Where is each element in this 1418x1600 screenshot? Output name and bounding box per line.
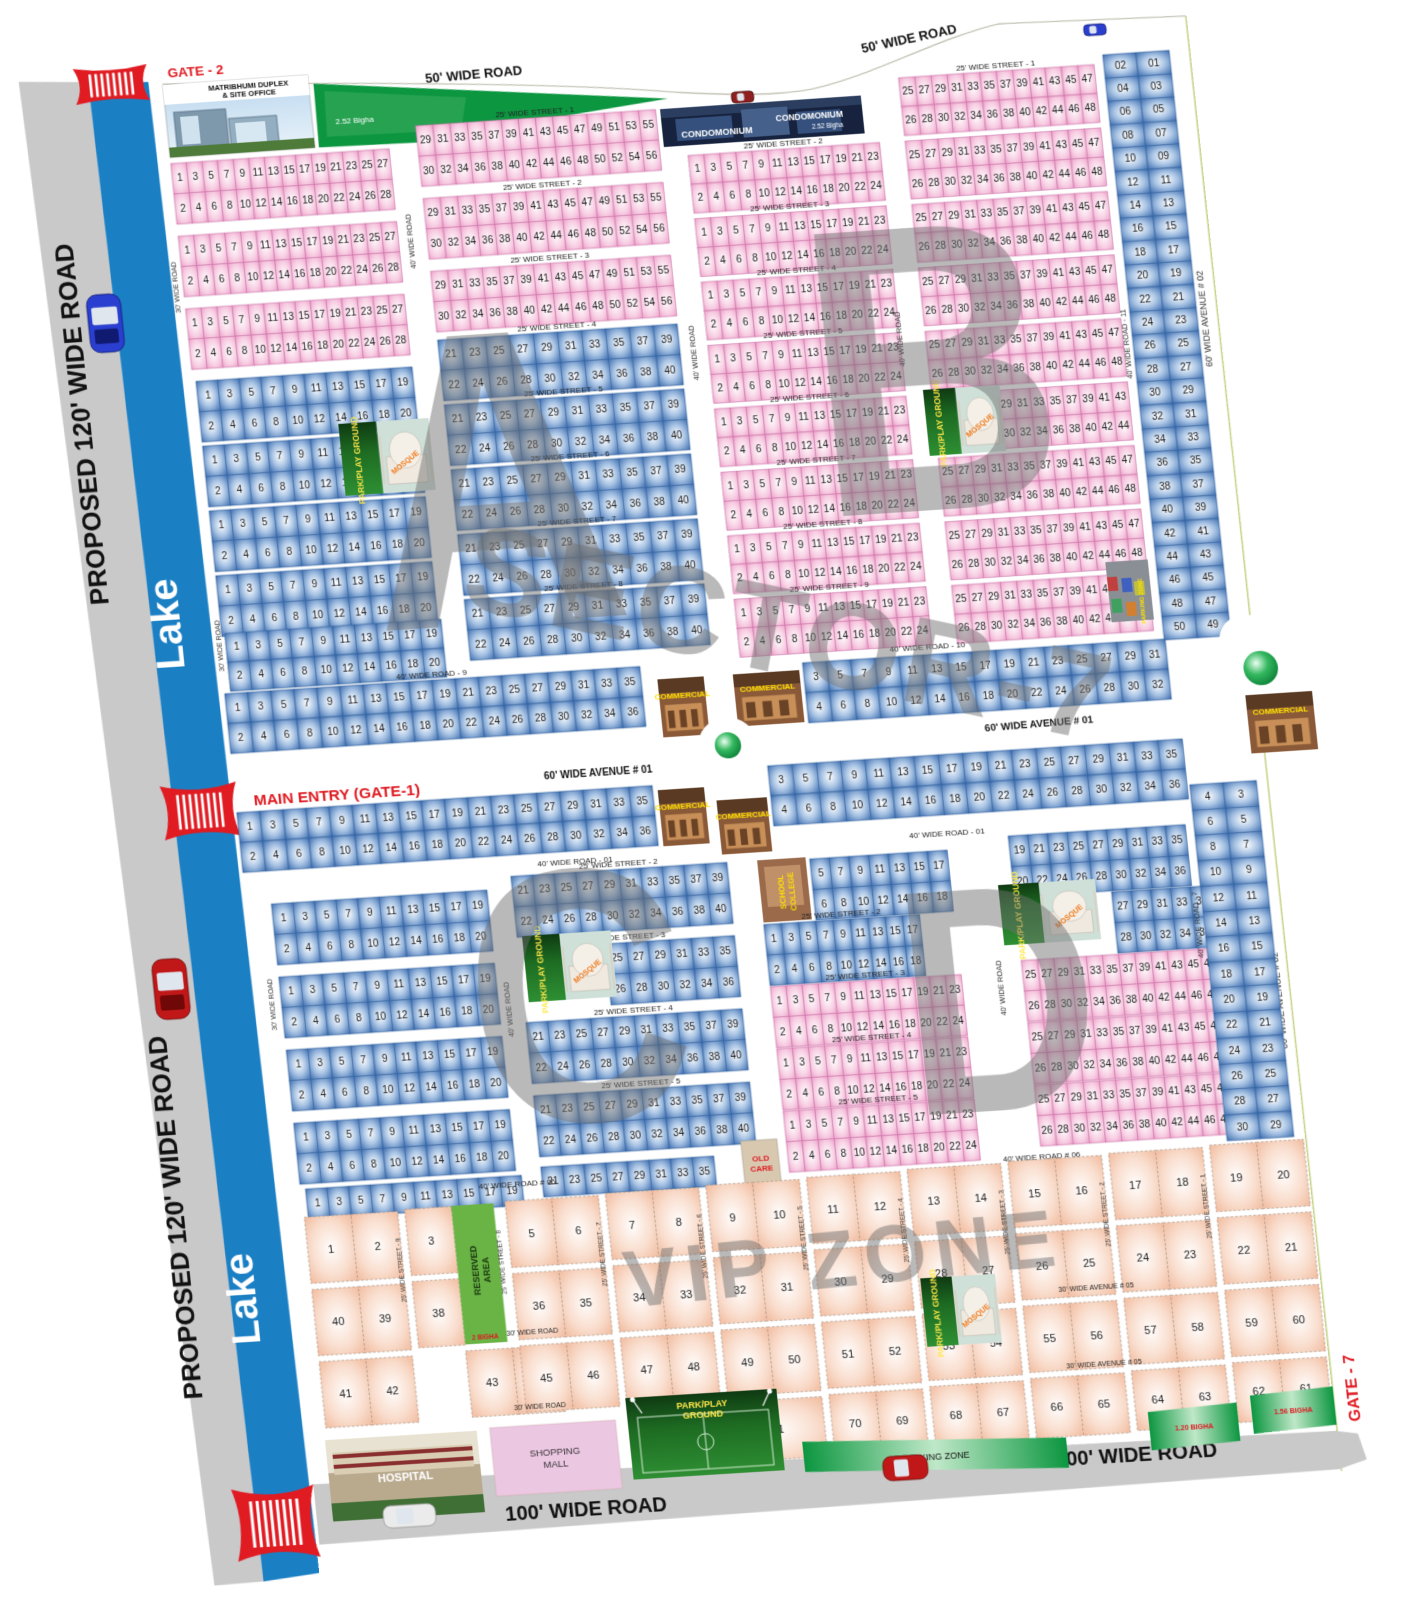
svg-text:39: 39: [667, 399, 680, 411]
svg-text:6: 6: [575, 1225, 582, 1237]
svg-text:37: 37: [488, 130, 501, 142]
svg-text:11: 11: [330, 578, 342, 590]
svg-text:16: 16: [1075, 1185, 1089, 1198]
svg-text:13: 13: [407, 905, 420, 917]
svg-text:12: 12: [411, 1156, 424, 1168]
svg-text:15: 15: [463, 1188, 476, 1200]
svg-text:14: 14: [425, 1082, 438, 1094]
svg-text:44: 44: [1092, 486, 1105, 498]
svg-text:46: 46: [1108, 485, 1121, 497]
svg-text:40: 40: [730, 1050, 743, 1062]
svg-text:30: 30: [558, 711, 571, 723]
svg-text:56: 56: [653, 223, 666, 235]
svg-text:27: 27: [918, 85, 931, 97]
svg-text:17: 17: [1129, 1180, 1143, 1193]
svg-text:42: 42: [1049, 233, 1062, 245]
svg-text:44: 44: [1187, 1116, 1200, 1128]
svg-text:35: 35: [1119, 1089, 1132, 1101]
svg-text:25: 25: [902, 86, 915, 98]
svg-text:19: 19: [1230, 1172, 1244, 1185]
svg-text:26: 26: [1144, 341, 1157, 353]
svg-text:54: 54: [643, 297, 656, 309]
svg-text:47: 47: [1128, 519, 1141, 531]
svg-text:12: 12: [863, 1084, 876, 1096]
svg-text:19: 19: [1170, 268, 1183, 280]
svg-text:17: 17: [314, 310, 327, 322]
svg-text:13: 13: [882, 1114, 895, 1126]
svg-text:10: 10: [320, 665, 333, 677]
svg-text:42: 42: [1042, 170, 1055, 182]
svg-text:14: 14: [348, 542, 361, 554]
svg-text:48: 48: [1104, 293, 1117, 305]
svg-text:22: 22: [998, 790, 1011, 802]
svg-text:41: 41: [1197, 526, 1210, 538]
svg-text:31: 31: [444, 207, 457, 219]
svg-text:15: 15: [291, 238, 304, 250]
svg-text:11: 11: [1246, 891, 1258, 903]
svg-text:Lake: Lake: [141, 577, 194, 671]
svg-text:13: 13: [345, 511, 358, 523]
svg-text:15: 15: [451, 1123, 464, 1135]
svg-text:49: 49: [606, 269, 619, 281]
svg-text:07: 07: [1155, 128, 1168, 140]
svg-text:20: 20: [332, 339, 345, 351]
svg-text:28: 28: [1120, 932, 1133, 944]
svg-text:22: 22: [1226, 1020, 1239, 1032]
svg-text:20: 20: [1223, 994, 1236, 1006]
svg-text:48: 48: [1171, 598, 1184, 610]
svg-text:47: 47: [581, 197, 594, 209]
svg-text:16: 16: [408, 841, 421, 853]
svg-text:40: 40: [677, 495, 690, 507]
svg-text:C: C: [446, 787, 710, 1204]
svg-text:10: 10: [785, 442, 798, 454]
svg-text:49: 49: [591, 123, 604, 135]
svg-text:55: 55: [642, 120, 655, 132]
svg-text:26: 26: [511, 714, 524, 726]
svg-text:39: 39: [1152, 1087, 1165, 1099]
svg-text:12: 12: [869, 1146, 882, 1158]
svg-text:34: 34: [970, 111, 983, 123]
svg-text:20: 20: [317, 194, 330, 206]
svg-text:38: 38: [1132, 1057, 1145, 1069]
svg-text:39: 39: [712, 873, 725, 885]
svg-text:31: 31: [1148, 649, 1161, 661]
svg-text:12: 12: [1212, 893, 1225, 905]
svg-text:05: 05: [1153, 104, 1166, 116]
svg-text:19: 19: [314, 163, 327, 175]
svg-text:35: 35: [1165, 749, 1178, 761]
svg-text:50: 50: [1174, 622, 1187, 634]
svg-text:10: 10: [771, 315, 784, 327]
svg-text:38: 38: [1003, 109, 1016, 121]
svg-text:18: 18: [431, 839, 444, 851]
svg-text:12: 12: [327, 543, 340, 555]
svg-text:42: 42: [1082, 551, 1095, 563]
svg-text:35: 35: [719, 946, 732, 958]
svg-text:28: 28: [1146, 364, 1159, 376]
svg-text:12: 12: [876, 798, 889, 810]
svg-text:33: 33: [698, 947, 711, 959]
svg-text:36: 36: [623, 433, 636, 445]
svg-text:47: 47: [574, 125, 587, 137]
svg-text:60: 60: [1292, 1314, 1306, 1327]
svg-text:10: 10: [239, 199, 252, 211]
svg-text:15: 15: [298, 311, 311, 323]
svg-text:35: 35: [478, 204, 491, 216]
svg-text:5: 5: [528, 1228, 535, 1240]
svg-text:49: 49: [598, 196, 611, 208]
svg-text:10: 10: [758, 189, 771, 201]
svg-text:46: 46: [1190, 990, 1203, 1002]
svg-text:13: 13: [897, 767, 910, 779]
svg-text:27: 27: [377, 159, 390, 171]
svg-text:33: 33: [1176, 897, 1189, 909]
svg-text:1: 1: [327, 1244, 334, 1256]
svg-text:35: 35: [983, 81, 996, 93]
svg-text:31: 31: [1117, 752, 1130, 764]
svg-text:36: 36: [532, 1300, 546, 1313]
svg-text:17: 17: [306, 237, 319, 249]
svg-text:14: 14: [278, 270, 291, 282]
svg-text:22: 22: [333, 193, 346, 205]
svg-text:25: 25: [1177, 338, 1190, 350]
svg-text:11: 11: [324, 513, 336, 525]
svg-text:14: 14: [410, 935, 423, 947]
svg-text:15: 15: [283, 165, 296, 177]
svg-text:48: 48: [1098, 230, 1111, 242]
svg-text:02: 02: [1114, 60, 1127, 72]
svg-text:10: 10: [292, 415, 305, 427]
svg-text:44: 44: [1098, 550, 1111, 562]
svg-text:28: 28: [380, 189, 393, 201]
svg-text:31: 31: [1131, 838, 1144, 850]
svg-text:18: 18: [302, 195, 315, 207]
svg-text:28: 28: [1095, 871, 1108, 883]
svg-text:37: 37: [495, 203, 508, 215]
svg-text:39: 39: [1194, 502, 1207, 514]
svg-text:40: 40: [1161, 505, 1174, 517]
svg-text:40: 40: [1085, 423, 1098, 435]
svg-text:01: 01: [1148, 58, 1161, 70]
svg-text:55: 55: [1043, 1333, 1057, 1346]
svg-text:14: 14: [335, 412, 348, 424]
svg-text:12: 12: [262, 271, 275, 283]
svg-text:42: 42: [1035, 106, 1048, 118]
svg-text:31: 31: [1156, 899, 1169, 911]
svg-text:34: 34: [1154, 867, 1167, 879]
svg-text:40: 40: [664, 365, 677, 377]
svg-text:42: 42: [1062, 360, 1075, 372]
svg-text:08: 08: [1122, 130, 1135, 142]
svg-text:46: 46: [1115, 549, 1128, 561]
svg-text:11: 11: [401, 1052, 413, 1064]
svg-text:10: 10: [327, 727, 340, 739]
svg-text:55: 55: [650, 193, 663, 205]
svg-text:36: 36: [986, 110, 999, 122]
svg-text:18: 18: [317, 340, 330, 352]
svg-text:21: 21: [337, 235, 350, 247]
svg-text:10: 10: [1210, 867, 1223, 879]
svg-text:31: 31: [1185, 409, 1198, 421]
svg-text:52: 52: [611, 153, 624, 165]
svg-text:42: 42: [525, 158, 538, 170]
svg-text:15: 15: [1251, 941, 1264, 953]
svg-text:16: 16: [888, 1020, 901, 1032]
svg-text:30: 30: [1140, 931, 1153, 943]
svg-text:40: 40: [715, 904, 728, 916]
svg-text:43: 43: [547, 200, 560, 212]
svg-text:27: 27: [1267, 1094, 1280, 1106]
svg-text:47: 47: [1081, 74, 1094, 86]
svg-text:55: 55: [657, 265, 670, 277]
svg-text:11: 11: [854, 991, 866, 1003]
svg-text:36: 36: [722, 977, 735, 989]
svg-text:10: 10: [367, 938, 380, 950]
svg-text:35: 35: [619, 403, 632, 415]
svg-text:28: 28: [921, 114, 934, 126]
svg-text:28: 28: [1071, 786, 1084, 798]
svg-text:22: 22: [1139, 294, 1152, 306]
svg-text:15: 15: [405, 811, 418, 823]
svg-text:12: 12: [362, 844, 375, 856]
svg-text:26: 26: [905, 115, 918, 127]
svg-text:13: 13: [282, 312, 295, 324]
svg-text:45: 45: [1200, 1084, 1213, 1096]
svg-text:46: 46: [560, 156, 573, 168]
svg-text:38: 38: [647, 432, 660, 444]
svg-text:47: 47: [1088, 138, 1101, 150]
svg-text:54: 54: [636, 224, 649, 236]
svg-text:56: 56: [645, 150, 658, 162]
svg-text:66: 66: [1050, 1402, 1064, 1415]
svg-text:35: 35: [626, 468, 639, 480]
svg-text:67: 67: [996, 1407, 1010, 1420]
svg-text:41: 41: [1086, 585, 1099, 597]
svg-text:59: 59: [1245, 1317, 1259, 1330]
svg-text:14: 14: [1215, 918, 1228, 930]
svg-text:06: 06: [1119, 107, 1132, 119]
svg-text:58: 58: [1191, 1322, 1205, 1335]
svg-text:70: 70: [849, 1418, 863, 1431]
svg-text:19: 19: [970, 762, 983, 774]
svg-text:11: 11: [791, 349, 803, 361]
svg-text:25: 25: [369, 233, 382, 245]
svg-text:42: 42: [1089, 614, 1102, 626]
svg-text:11: 11: [359, 814, 371, 826]
svg-text:46: 46: [587, 1369, 601, 1382]
svg-text:9: 9: [729, 1212, 736, 1224]
svg-text:35: 35: [613, 338, 626, 350]
svg-text:36: 36: [1116, 1058, 1129, 1070]
svg-text:18: 18: [949, 794, 962, 806]
svg-text:10: 10: [791, 506, 804, 518]
svg-text:44: 44: [1174, 991, 1187, 1003]
svg-text:43: 43: [1089, 457, 1102, 469]
svg-text:18: 18: [419, 720, 432, 732]
svg-text:43: 43: [1049, 76, 1062, 88]
svg-text:54: 54: [628, 151, 641, 163]
svg-text:44: 44: [1166, 551, 1179, 563]
svg-text:10: 10: [840, 960, 853, 972]
svg-text:16: 16: [454, 1153, 467, 1165]
svg-text:37: 37: [637, 336, 650, 348]
svg-text:20: 20: [1277, 1169, 1291, 1182]
svg-text:12: 12: [255, 198, 268, 210]
svg-text:42: 42: [1158, 992, 1171, 1004]
svg-text:24: 24: [1022, 789, 1035, 801]
svg-text:45: 45: [557, 126, 570, 138]
svg-text:11: 11: [267, 313, 279, 325]
svg-text:38: 38: [640, 367, 653, 379]
svg-text:42: 42: [1101, 422, 1114, 434]
svg-text:14: 14: [418, 1008, 431, 1020]
svg-text:20: 20: [442, 719, 455, 731]
svg-text:16: 16: [901, 1144, 914, 1156]
svg-text:10: 10: [1124, 153, 1137, 165]
svg-text:17: 17: [428, 809, 441, 821]
svg-text:13: 13: [352, 576, 365, 588]
svg-text:21: 21: [330, 162, 343, 174]
svg-text:14: 14: [885, 1145, 898, 1157]
svg-text:09: 09: [1157, 151, 1170, 163]
svg-text:33: 33: [454, 133, 467, 145]
svg-text:32: 32: [1151, 411, 1164, 423]
svg-text:50: 50: [594, 154, 607, 166]
svg-text:17: 17: [1167, 245, 1180, 257]
svg-text:28: 28: [1234, 1096, 1247, 1108]
svg-text:14: 14: [875, 958, 888, 970]
svg-text:36: 36: [1109, 995, 1122, 1007]
svg-text:13: 13: [332, 382, 345, 394]
svg-text:22: 22: [465, 717, 478, 729]
svg-text:10: 10: [765, 252, 778, 264]
svg-text:43: 43: [1171, 960, 1184, 972]
svg-text:43: 43: [1177, 1023, 1190, 1035]
svg-text:11: 11: [347, 695, 359, 707]
svg-text:34: 34: [1144, 781, 1157, 793]
svg-text:41: 41: [1059, 331, 1072, 343]
svg-text:20: 20: [325, 266, 338, 278]
svg-text:37: 37: [643, 401, 656, 413]
svg-text:24: 24: [1136, 1252, 1150, 1265]
svg-text:43: 43: [486, 1377, 500, 1390]
svg-text:45: 45: [1065, 75, 1078, 87]
svg-text:46: 46: [1088, 295, 1101, 307]
svg-text:52: 52: [619, 225, 632, 237]
svg-text:42: 42: [1164, 528, 1177, 540]
svg-text:29: 29: [427, 208, 440, 220]
svg-text:41: 41: [1046, 204, 1059, 216]
svg-text:15: 15: [921, 765, 934, 777]
svg-text:14: 14: [373, 723, 386, 735]
svg-text:16: 16: [1132, 224, 1145, 236]
svg-text:30: 30: [1149, 387, 1162, 399]
svg-text:12: 12: [403, 1083, 416, 1095]
svg-text:16: 16: [286, 196, 299, 208]
svg-text:39: 39: [505, 129, 518, 141]
svg-text:29: 29: [1136, 900, 1149, 912]
svg-text:43: 43: [1075, 330, 1088, 342]
svg-text:25: 25: [1082, 1257, 1096, 1270]
svg-text:46: 46: [1204, 1115, 1217, 1127]
svg-text:14: 14: [285, 342, 298, 354]
svg-text:15: 15: [443, 1050, 456, 1062]
svg-text:44: 44: [543, 157, 556, 169]
svg-text:11: 11: [393, 979, 405, 991]
svg-text:37: 37: [713, 1094, 726, 1106]
svg-text:38: 38: [1138, 1119, 1151, 1131]
svg-text:38: 38: [693, 905, 706, 917]
svg-text:64: 64: [1151, 1394, 1165, 1407]
svg-text:13: 13: [876, 1052, 889, 1064]
svg-text:27: 27: [1117, 901, 1130, 913]
svg-text:13: 13: [361, 633, 374, 645]
svg-text:10: 10: [305, 545, 318, 557]
svg-text:19: 19: [329, 309, 342, 321]
svg-text:17: 17: [1254, 967, 1267, 979]
svg-text:15: 15: [898, 1113, 911, 1125]
svg-text:21: 21: [1172, 292, 1185, 304]
svg-text:53: 53: [640, 267, 653, 279]
svg-text:65: 65: [1097, 1399, 1111, 1412]
svg-text:26: 26: [364, 191, 377, 203]
svg-text:35: 35: [1190, 455, 1203, 467]
svg-text:51: 51: [623, 268, 636, 280]
svg-text:40: 40: [1142, 993, 1155, 1005]
svg-text:10: 10: [312, 610, 325, 622]
svg-text:13: 13: [275, 239, 288, 251]
svg-text:68: 68: [949, 1410, 963, 1423]
svg-text:13: 13: [869, 990, 882, 1002]
svg-text:50: 50: [602, 227, 615, 239]
svg-text:38: 38: [1125, 994, 1138, 1006]
svg-text:41: 41: [1168, 1086, 1181, 1098]
svg-text:14: 14: [1129, 200, 1142, 212]
svg-text:44: 44: [1078, 359, 1091, 371]
svg-text:48: 48: [1111, 357, 1124, 369]
svg-text:45: 45: [1105, 456, 1118, 468]
svg-text:29: 29: [420, 135, 433, 147]
svg-text:37: 37: [1066, 395, 1079, 407]
svg-text:12: 12: [858, 959, 871, 971]
svg-text:45: 45: [1078, 202, 1091, 214]
svg-text:29: 29: [1270, 1119, 1283, 1131]
svg-text:56: 56: [1090, 1330, 1104, 1343]
svg-text:10: 10: [254, 344, 267, 356]
svg-text:11: 11: [386, 906, 398, 918]
svg-text:19: 19: [322, 236, 335, 248]
svg-text:24: 24: [1141, 317, 1154, 329]
svg-text:14: 14: [355, 607, 368, 619]
svg-text:11: 11: [339, 635, 351, 647]
svg-text:38: 38: [1069, 424, 1082, 436]
svg-text:14: 14: [872, 1021, 885, 1033]
svg-text:42: 42: [1075, 487, 1088, 499]
svg-text:12: 12: [388, 937, 401, 949]
svg-text:11: 11: [772, 159, 784, 171]
svg-text:45: 45: [1072, 139, 1085, 151]
svg-text:39: 39: [1016, 79, 1029, 91]
svg-text:16: 16: [301, 341, 314, 353]
svg-text:36: 36: [1156, 458, 1169, 470]
svg-text:45: 45: [1187, 959, 1200, 971]
svg-text:16: 16: [432, 934, 445, 946]
svg-text:32: 32: [1120, 783, 1133, 795]
svg-text:11: 11: [860, 1053, 872, 1065]
svg-text:10: 10: [778, 379, 791, 391]
svg-text:41: 41: [1039, 141, 1052, 153]
